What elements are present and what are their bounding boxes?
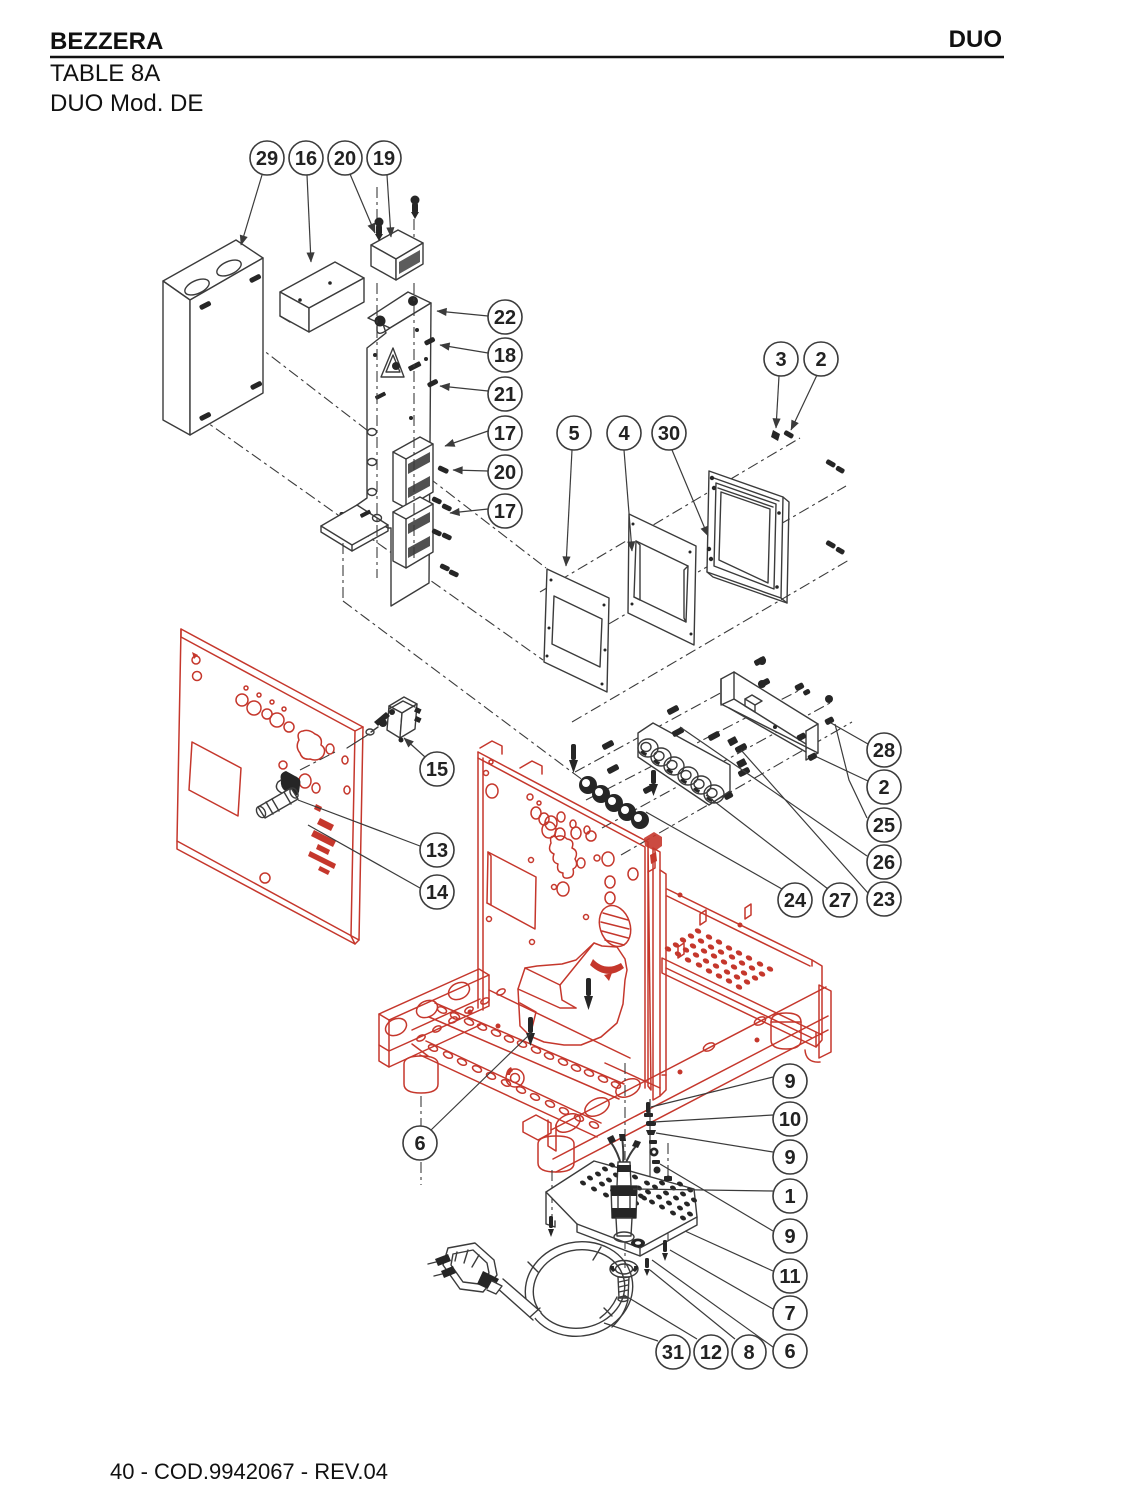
svg-text:40 - COD.9942067 - REV.04: 40 - COD.9942067 - REV.04 bbox=[110, 1459, 388, 1484]
svg-text:27: 27 bbox=[829, 890, 851, 912]
svg-text:6: 6 bbox=[784, 1341, 795, 1363]
svg-text:19: 19 bbox=[373, 148, 395, 170]
svg-text:3: 3 bbox=[775, 349, 786, 371]
svg-text:13: 13 bbox=[426, 840, 448, 862]
svg-text:22: 22 bbox=[494, 307, 516, 329]
svg-text:9: 9 bbox=[784, 1147, 795, 1169]
svg-text:20: 20 bbox=[494, 462, 516, 484]
svg-text:8: 8 bbox=[743, 1342, 754, 1364]
svg-text:DUO: DUO bbox=[949, 26, 1002, 53]
svg-text:17: 17 bbox=[494, 423, 516, 445]
svg-text:12: 12 bbox=[700, 1342, 722, 1364]
svg-text:2: 2 bbox=[878, 777, 889, 799]
svg-text:9: 9 bbox=[784, 1226, 795, 1248]
svg-text:30: 30 bbox=[658, 423, 680, 445]
svg-text:16: 16 bbox=[295, 148, 317, 170]
svg-text:31: 31 bbox=[662, 1342, 684, 1364]
svg-text:7: 7 bbox=[784, 1303, 795, 1325]
svg-text:4: 4 bbox=[618, 423, 630, 445]
svg-text:26: 26 bbox=[873, 852, 895, 874]
svg-text:DUO Mod. DE: DUO Mod. DE bbox=[50, 90, 203, 117]
svg-text:2: 2 bbox=[815, 349, 826, 371]
svg-text:1: 1 bbox=[784, 1186, 795, 1208]
svg-text:10: 10 bbox=[779, 1109, 801, 1131]
svg-text:23: 23 bbox=[873, 889, 895, 911]
svg-text:20: 20 bbox=[334, 148, 356, 170]
svg-text:21: 21 bbox=[494, 384, 516, 406]
svg-text:18: 18 bbox=[494, 345, 516, 367]
svg-text:17: 17 bbox=[494, 501, 516, 523]
svg-text:28: 28 bbox=[873, 740, 895, 762]
svg-text:5: 5 bbox=[568, 423, 579, 445]
svg-text:BEZZERA: BEZZERA bbox=[50, 28, 163, 55]
svg-text:24: 24 bbox=[784, 890, 807, 912]
svg-text:29: 29 bbox=[256, 148, 278, 170]
svg-text:6: 6 bbox=[414, 1133, 425, 1155]
svg-text:11: 11 bbox=[779, 1266, 800, 1288]
svg-text:9: 9 bbox=[784, 1071, 795, 1093]
svg-text:TABLE 8A: TABLE 8A bbox=[50, 60, 160, 87]
svg-text:15: 15 bbox=[426, 759, 448, 781]
svg-text:25: 25 bbox=[873, 815, 895, 837]
svg-text:14: 14 bbox=[426, 882, 449, 904]
